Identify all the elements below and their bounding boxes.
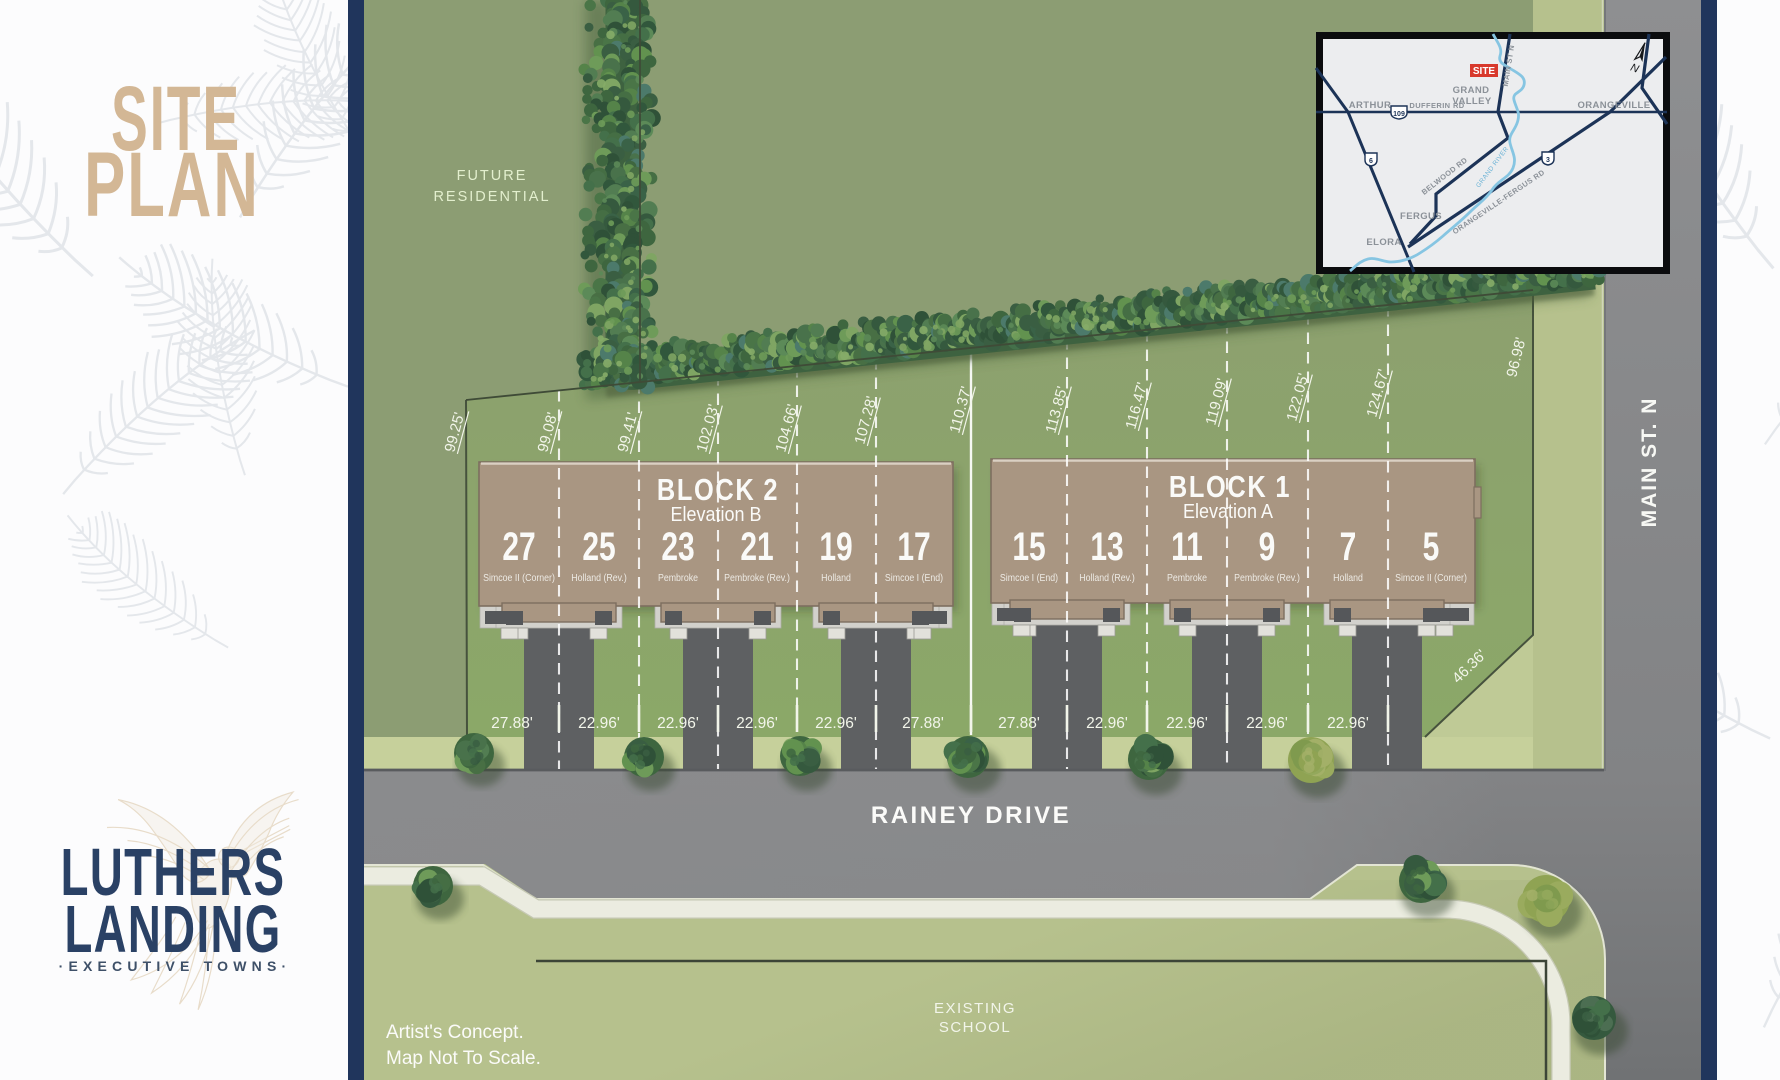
- svg-text:11: 11: [1171, 525, 1203, 569]
- svg-text:FUTURE: FUTURE: [457, 168, 528, 184]
- svg-text:Simcoe I (End): Simcoe I (End): [885, 571, 943, 583]
- svg-text:GRAND: GRAND: [1453, 85, 1490, 96]
- svg-text:Map Not To Scale.: Map Not To Scale.: [386, 1048, 541, 1069]
- svg-text:22.96': 22.96': [1086, 715, 1128, 732]
- svg-text:Pembroke: Pembroke: [658, 571, 698, 583]
- svg-text:23: 23: [661, 525, 694, 569]
- svg-text:ELORA: ELORA: [1366, 237, 1401, 248]
- svg-text:SITE: SITE: [1473, 66, 1496, 77]
- svg-text:BLOCK 1: BLOCK 1: [1169, 470, 1291, 505]
- svg-text:109: 109: [1393, 111, 1405, 118]
- svg-text:6: 6: [1369, 158, 1373, 165]
- svg-text:15: 15: [1012, 525, 1045, 569]
- svg-text:22.96': 22.96': [1246, 715, 1288, 732]
- svg-text:DUFFERIN RD: DUFFERIN RD: [1409, 101, 1464, 110]
- svg-text:Holland (Rev.): Holland (Rev.): [1079, 571, 1135, 583]
- svg-text:Simcoe I (End): Simcoe I (End): [1000, 571, 1058, 583]
- svg-text:13: 13: [1090, 525, 1123, 569]
- svg-text:22.96': 22.96': [1327, 715, 1369, 732]
- svg-text:Elevation B: Elevation B: [670, 504, 761, 526]
- svg-text:27: 27: [502, 525, 535, 569]
- svg-text:Holland: Holland: [821, 571, 851, 583]
- svg-text:RAINEY DRIVE: RAINEY DRIVE: [871, 802, 1071, 829]
- svg-text:·EXECUTIVE TOWNS·: ·EXECUTIVE TOWNS·: [59, 958, 292, 974]
- svg-text:FERGUS: FERGUS: [1400, 211, 1442, 222]
- svg-text:22.96': 22.96': [578, 715, 620, 732]
- svg-text:Pembroke (Rev.): Pembroke (Rev.): [724, 571, 790, 583]
- svg-text:Holland: Holland: [1333, 571, 1363, 583]
- svg-text:25: 25: [582, 525, 615, 569]
- svg-text:19: 19: [819, 525, 852, 569]
- svg-text:22.96': 22.96': [657, 715, 699, 732]
- svg-text:ORANGEVILLE: ORANGEVILLE: [1577, 100, 1650, 111]
- svg-text:Holland (Rev.): Holland (Rev.): [571, 571, 627, 583]
- svg-text:RESIDENTIAL: RESIDENTIAL: [433, 189, 550, 205]
- svg-text:LANDING: LANDING: [64, 892, 281, 967]
- svg-text:3: 3: [1546, 157, 1550, 164]
- svg-text:27.88': 27.88': [491, 715, 533, 732]
- svg-text:5: 5: [1423, 525, 1440, 569]
- svg-text:Pembroke (Rev.): Pembroke (Rev.): [1234, 571, 1300, 583]
- svg-text:EXISTING: EXISTING: [934, 1000, 1016, 1017]
- svg-text:MAIN ST. N: MAIN ST. N: [1638, 397, 1661, 528]
- svg-text:17: 17: [897, 525, 930, 569]
- svg-text:22.96': 22.96': [815, 715, 857, 732]
- svg-text:PLAN: PLAN: [84, 133, 260, 236]
- svg-text:27.88': 27.88': [998, 715, 1040, 732]
- svg-text:7: 7: [1340, 525, 1357, 569]
- svg-text:Simcoe II (Corner): Simcoe II (Corner): [1395, 571, 1467, 583]
- svg-text:Simcoe II (Corner): Simcoe II (Corner): [483, 571, 555, 583]
- svg-text:9: 9: [1259, 525, 1276, 569]
- svg-text:22.96': 22.96': [1166, 715, 1208, 732]
- svg-text:21: 21: [740, 525, 773, 569]
- svg-text:Artist's Concept.: Artist's Concept.: [386, 1022, 524, 1043]
- svg-text:SCHOOL: SCHOOL: [939, 1019, 1011, 1036]
- svg-text:Pembroke: Pembroke: [1167, 571, 1207, 583]
- svg-text:BLOCK 2: BLOCK 2: [657, 473, 779, 508]
- svg-text:ARTHUR: ARTHUR: [1349, 100, 1392, 111]
- svg-text:22.96': 22.96': [736, 715, 778, 732]
- svg-text:Elevation A: Elevation A: [1183, 501, 1273, 523]
- svg-text:27.88': 27.88': [902, 715, 944, 732]
